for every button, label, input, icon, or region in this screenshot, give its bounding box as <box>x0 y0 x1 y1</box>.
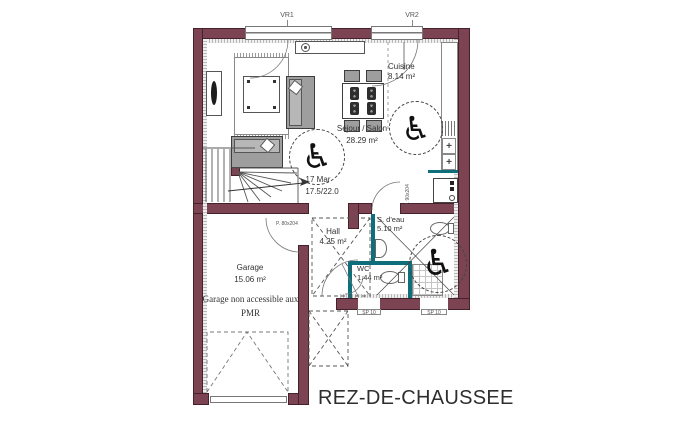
dining-chair <box>344 70 360 82</box>
accessibility-circle-cuisine: ♿ <box>389 101 443 155</box>
room-area-sdeau: 5.10 m² <box>377 224 402 233</box>
room-label-wc: WC <box>357 264 370 273</box>
dining-seat <box>367 87 376 100</box>
stair-direction-arrow <box>228 183 303 191</box>
wheelchair-icon: ♿ <box>302 140 332 174</box>
room-label-garage: Garage <box>237 263 264 273</box>
toilet-wc <box>380 271 400 284</box>
porch-zone <box>309 311 348 366</box>
room-area-cuisine: 8.14 m² <box>388 72 415 82</box>
room-area-wc: 1.44 m² <box>357 273 382 282</box>
coffee-table-corner <box>247 106 250 109</box>
dining-table <box>342 83 384 119</box>
room-area-hall: 4.25 m² <box>319 237 346 247</box>
plan-title: REZ-DE-CHAUSSEE <box>318 387 514 410</box>
window-label-vr1: VR1 <box>280 12 294 21</box>
wheelchair-icon: ♿ <box>401 112 431 145</box>
worktop-edge <box>428 170 458 173</box>
vr2-tick <box>412 20 413 26</box>
media-knob <box>301 43 310 52</box>
plan-linework <box>0 0 680 425</box>
coffee-table-corner <box>273 106 276 109</box>
burner-icon: + <box>446 157 452 168</box>
door-label-hall: P. 80x204 <box>276 221 298 227</box>
stove-burner: + <box>442 138 456 154</box>
dining-chair <box>366 70 382 82</box>
wall-stub-hall <box>348 203 359 229</box>
stairs-count: 17 Mar <box>306 175 331 185</box>
wall-sejour-garage <box>193 203 309 214</box>
coffee-table-corner <box>247 80 250 83</box>
room-area-sejour: 28.29 m² <box>346 136 378 146</box>
toilet-sdeau <box>430 222 450 235</box>
floor-plan: + + <box>0 0 680 425</box>
wall-garage-bottom-left <box>193 393 209 405</box>
coffee-table-corner <box>273 80 276 83</box>
toilet-sdeau-tank <box>448 223 454 234</box>
dining-seat <box>350 102 359 115</box>
opening-label-sp10-right: SP 10 <box>427 310 441 316</box>
partition-wc-left <box>348 261 352 298</box>
window-label-vr2: VR2 <box>405 12 419 21</box>
kitchen-sink <box>442 121 456 136</box>
washer-switch <box>450 181 454 185</box>
accessibility-circle-sdeau: ♿ <box>409 235 467 293</box>
garage-door-panel <box>210 396 287 403</box>
window-vr2 <box>371 26 423 40</box>
room-label-sdeau: S. d'eau <box>377 215 404 224</box>
washbasin <box>375 239 387 258</box>
dining-seat <box>367 102 376 115</box>
door-label-sdeau: P. 90x204 <box>405 184 411 206</box>
sdeau-door-swing <box>372 182 400 210</box>
garage-door-swing <box>207 332 288 392</box>
room-label-cuisine: Cuisine <box>388 62 415 72</box>
burner-icon: + <box>446 141 452 152</box>
window-vr1 <box>245 26 332 40</box>
washer-dial <box>449 195 455 201</box>
stairs-riser-tread: 17.5/22.0 <box>305 187 338 197</box>
stove-burner: + <box>442 154 456 170</box>
room-label-sejour: Séjour / Salon <box>337 124 387 134</box>
room-label-hall: Hall <box>326 227 340 237</box>
room-area-garage: 15.06 m² <box>234 275 266 285</box>
garage-note: Garage non accessible aux PMR <box>202 292 299 321</box>
wall-left <box>193 28 203 405</box>
dining-seat <box>350 87 359 100</box>
wheelchair-icon: ♿ <box>422 246 454 282</box>
front-door-swing <box>322 260 358 296</box>
console-decor <box>211 81 217 105</box>
opening-label-sp10-left: SP 10 <box>362 310 376 316</box>
vr1-tick <box>287 20 288 26</box>
toilet-wc-tank <box>398 272 405 283</box>
hall-zone <box>312 218 370 296</box>
washer-switch <box>450 187 454 191</box>
stair-post <box>231 167 240 176</box>
wall-garage-right <box>298 245 309 405</box>
